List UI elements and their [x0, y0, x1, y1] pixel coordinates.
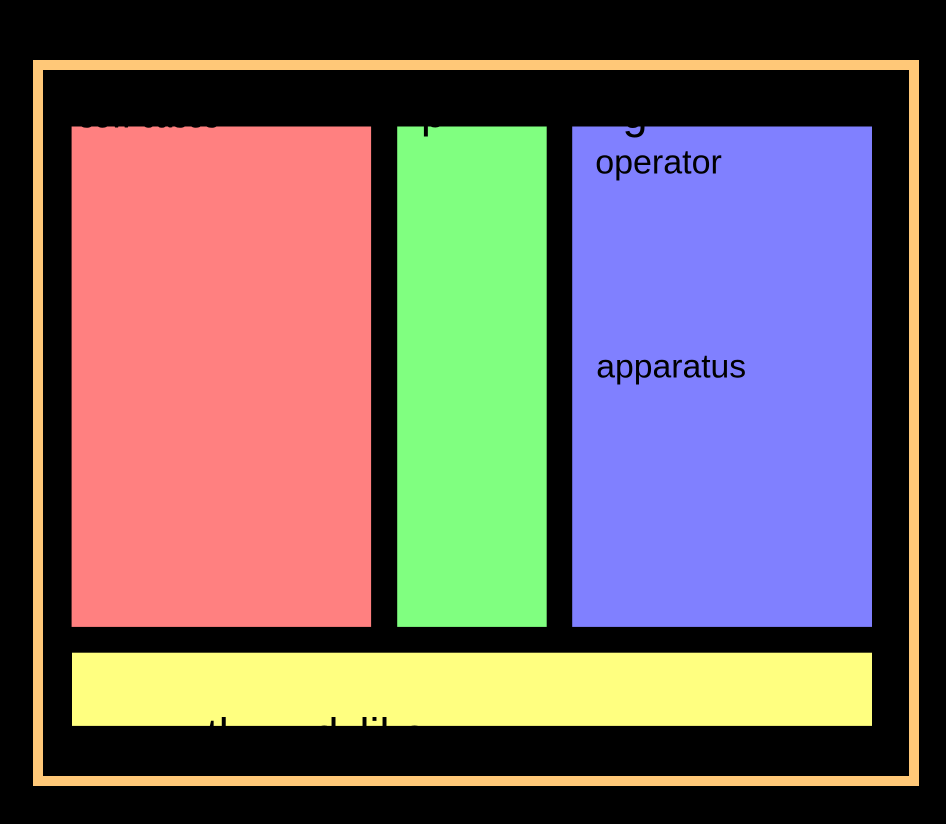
svg-text:apparatus: apparatus: [596, 348, 746, 386]
svg-text:operator: operator: [595, 144, 722, 182]
svg-text:tl: tl: [206, 709, 229, 760]
svg-text:d: d: [314, 709, 339, 760]
svg-text:sew cases: sew cases: [79, 102, 219, 135]
svg-text:like: like: [360, 709, 428, 760]
svg-text:g: g: [623, 87, 648, 138]
svg-text:p: p: [421, 86, 446, 137]
